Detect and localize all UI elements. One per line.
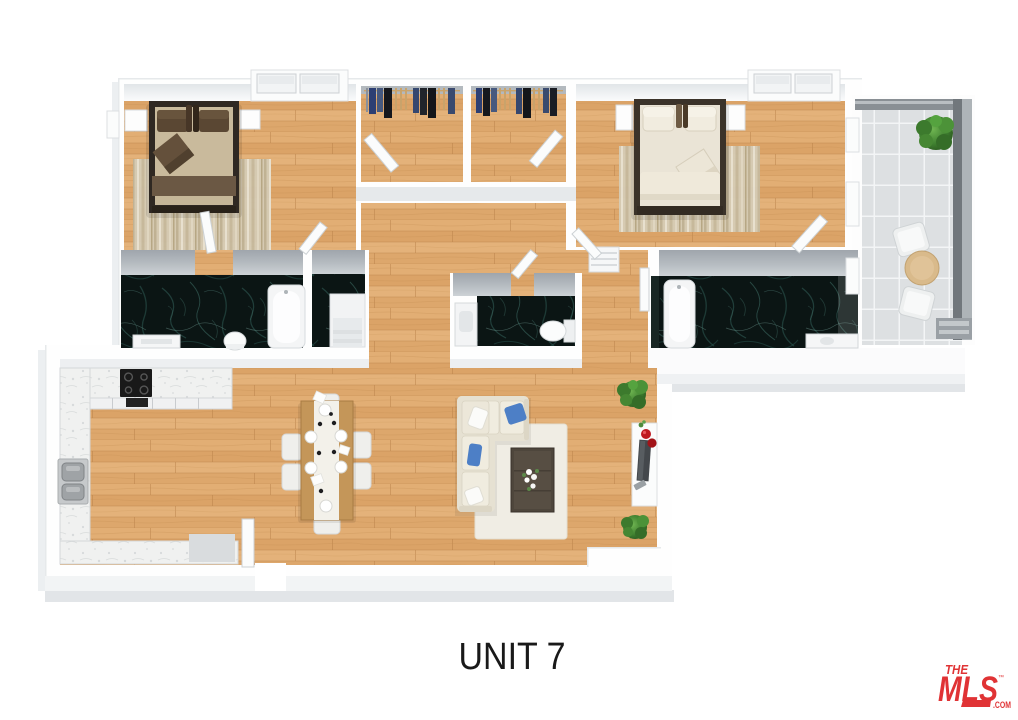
svg-text:™: ™ xyxy=(998,674,1004,681)
svg-text:.COM: .COM xyxy=(993,700,1011,710)
svg-text:UNIT 7: UNIT 7 xyxy=(459,636,566,678)
